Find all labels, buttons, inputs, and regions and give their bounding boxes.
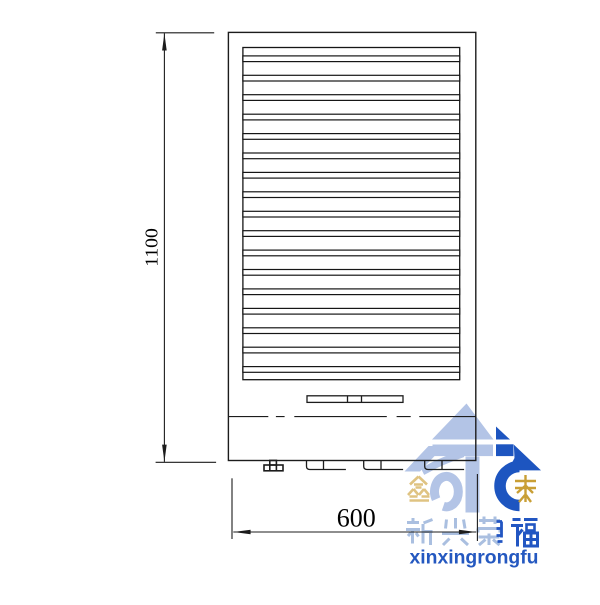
svg-text:1100: 1100	[142, 228, 162, 267]
svg-text:600: 600	[337, 503, 376, 533]
svg-text:xinxingrongfu: xinxingrongfu	[410, 547, 539, 568]
